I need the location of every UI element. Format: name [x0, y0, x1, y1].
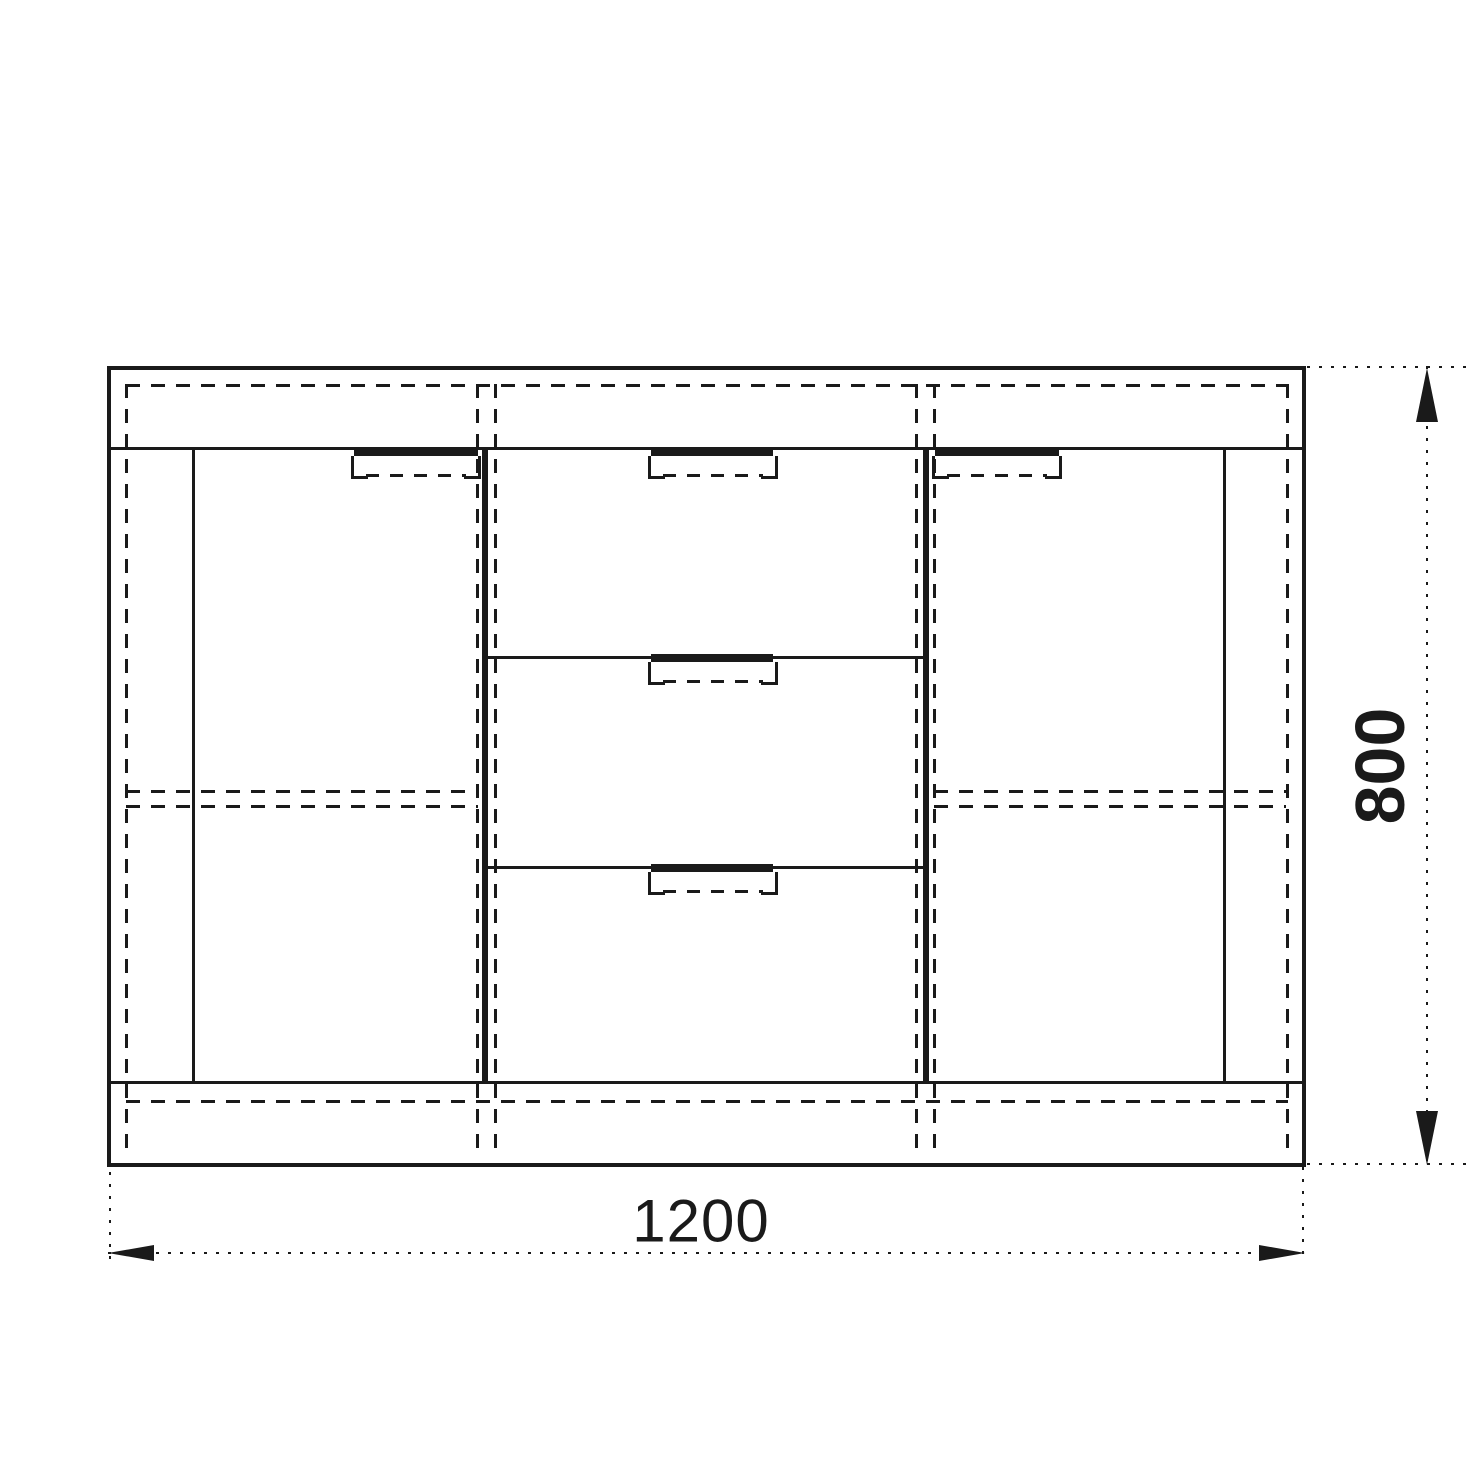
- height-arrow-down-icon: [1416, 1111, 1438, 1165]
- shelf-hidden-line-left-upper: [126, 790, 478, 793]
- height-dimension-line: [1426, 366, 1428, 1167]
- right-door-handle-bar: [935, 448, 1059, 456]
- recess-corner: [464, 476, 478, 479]
- width-arrow-right-icon: [1259, 1245, 1305, 1261]
- hidden-edge-right-side: [1286, 384, 1289, 1157]
- height-extension-line-bottom: [1307, 1163, 1473, 1165]
- left-door-handle-bar: [354, 448, 478, 456]
- hidden-edge-left-divider-a: [476, 384, 479, 1157]
- drawer2-handle-recess: [648, 662, 778, 685]
- hidden-edge-top-panel: [126, 384, 1288, 387]
- recess-corner: [761, 476, 775, 479]
- height-extension-line-top: [1307, 366, 1473, 368]
- recess-hidden-line: [663, 680, 763, 683]
- recess-hidden-line: [366, 474, 466, 477]
- right-door-handle-recess: [932, 456, 1062, 479]
- recess-hidden-line: [663, 474, 763, 477]
- recess-corner: [1045, 476, 1059, 479]
- right-divider-panel-line: [923, 447, 929, 1084]
- hidden-edge-right-divider-b: [933, 384, 936, 1157]
- technical-drawing-canvas: 800 1200: [0, 0, 1480, 1481]
- right-door-outer-edge: [1223, 447, 1226, 1084]
- drawer1-handle-recess: [648, 456, 778, 479]
- bottom-panel-line: [107, 1081, 1306, 1084]
- height-dimension-label: 800: [1340, 708, 1420, 825]
- drawer3-handle-recess: [648, 872, 778, 895]
- left-door-handle-recess: [351, 456, 481, 479]
- recess-hidden-line: [947, 474, 1047, 477]
- drawer1-handle-bar: [651, 448, 773, 456]
- height-arrow-up-icon: [1416, 368, 1438, 422]
- drawer3-handle-bar: [651, 864, 773, 872]
- shelf-hidden-line-right-upper: [934, 790, 1286, 793]
- width-arrow-left-icon: [108, 1245, 154, 1261]
- shelf-hidden-line-right-lower: [934, 805, 1286, 808]
- recess-corner: [761, 892, 775, 895]
- drawer2-handle-bar: [651, 654, 773, 662]
- cabinet-outline: [107, 366, 1306, 1167]
- hidden-edge-left-side: [125, 384, 128, 1157]
- recess-hidden-line: [663, 890, 763, 893]
- hidden-edge-left-divider-b: [494, 384, 497, 1157]
- left-door-outer-edge: [192, 447, 195, 1084]
- hidden-edge-bottom-panel: [126, 1100, 1288, 1103]
- left-divider-panel-line: [482, 447, 488, 1084]
- shelf-hidden-line-left-lower: [126, 805, 478, 808]
- width-dimension-label: 1200: [632, 1187, 769, 1256]
- hidden-edge-right-divider-a: [915, 384, 918, 1157]
- recess-corner: [761, 682, 775, 685]
